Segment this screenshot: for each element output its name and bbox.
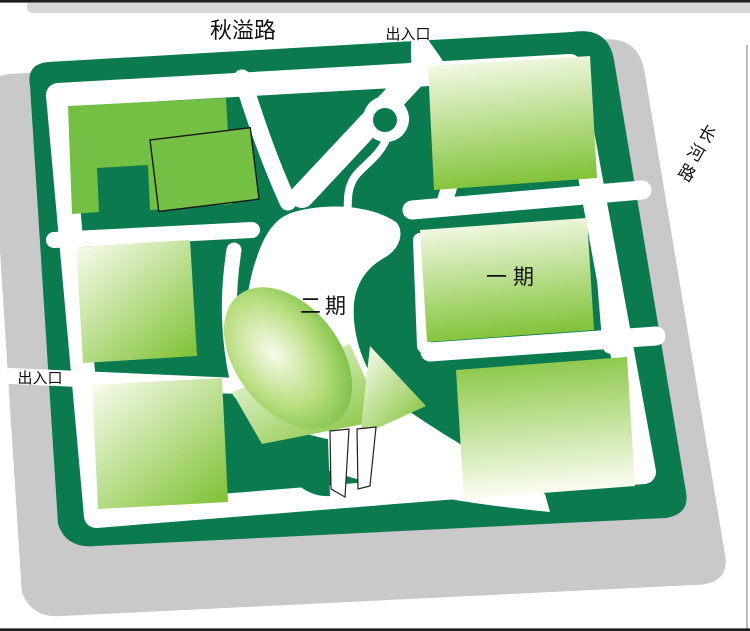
pond-island <box>373 108 397 132</box>
qiuyi-road-edge-line <box>0 0 750 3</box>
label-exit-left: 出入口 <box>17 370 62 387</box>
building-northeast <box>428 56 597 190</box>
pier-left <box>330 429 349 497</box>
label-phase1: 一期 <box>486 266 540 289</box>
changhe-road-edge-line <box>746 45 747 631</box>
map-canvas: 秋溢路 出入口 出入口 一期 二期 长 河 路 <box>0 0 750 631</box>
building-west-middle <box>76 240 197 363</box>
label-qiuyi-road: 秋溢路 <box>210 18 276 43</box>
qiuyi-road-strip <box>27 3 750 13</box>
road-west-upper <box>54 230 252 240</box>
building-southeast <box>456 357 635 499</box>
site-map-page: 秋溢路 出入口 出入口 一期 二期 长 河 路 <box>0 0 750 631</box>
label-phase2: 二期 <box>300 295 350 318</box>
label-exit-top: 出入口 <box>385 26 430 43</box>
building-northwest-annex <box>150 128 259 212</box>
building-west-south <box>92 378 228 509</box>
